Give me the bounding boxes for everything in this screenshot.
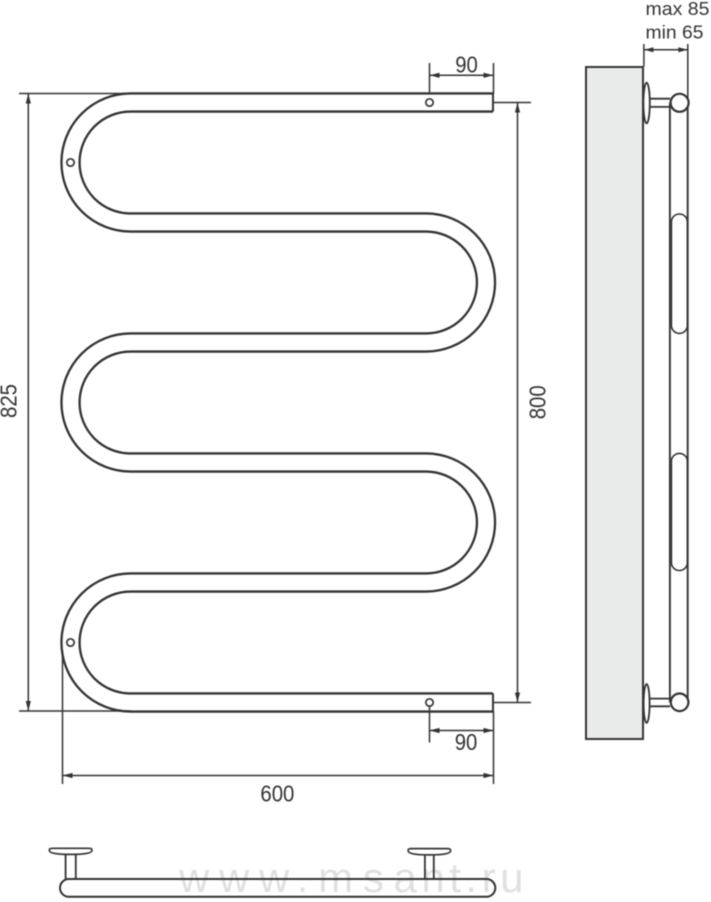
svg-text:90: 90 xyxy=(455,52,478,78)
svg-text:min 65: min 65 xyxy=(646,23,704,43)
svg-text:90: 90 xyxy=(455,729,478,755)
svg-text:825: 825 xyxy=(0,384,22,418)
svg-text:600: 600 xyxy=(260,781,294,807)
svg-text:800: 800 xyxy=(525,385,551,419)
svg-text:max 85: max 85 xyxy=(646,0,710,19)
